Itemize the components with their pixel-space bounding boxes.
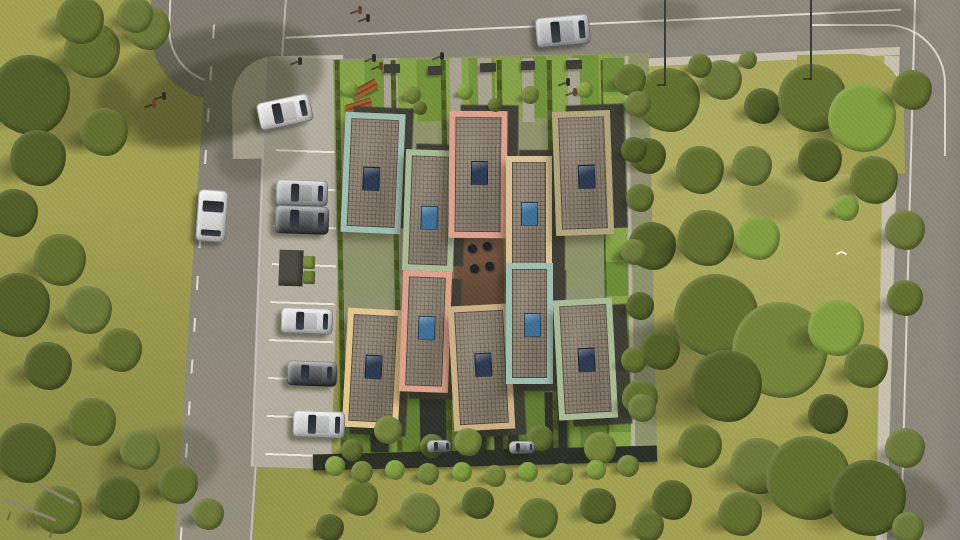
tree (374, 416, 402, 444)
roof-skylight (420, 206, 438, 231)
tree (626, 292, 654, 320)
tree (457, 84, 473, 100)
tree (678, 424, 722, 468)
tree (80, 108, 128, 156)
car-rear-glass (578, 20, 585, 38)
tree (892, 512, 924, 540)
car-rear-glass (201, 229, 221, 237)
car-parked-4 (287, 360, 338, 387)
tree (808, 394, 848, 434)
tree (885, 210, 925, 250)
entry-wall-4 (566, 60, 582, 70)
car-rear-glass (334, 417, 340, 433)
tree (551, 463, 573, 485)
car-roof-panel (308, 365, 323, 381)
car-driving-top-road (535, 14, 591, 49)
roof-skylight (524, 313, 541, 337)
car-rear-glass (317, 186, 323, 202)
car-roof-panel (279, 101, 298, 122)
ground-shadow-6 (640, 0, 700, 28)
tree (732, 146, 772, 186)
waste-bin-1 (303, 271, 315, 284)
tree (0, 189, 38, 237)
tree (850, 156, 898, 204)
entry-wall-2 (480, 63, 496, 73)
car-rear-glass (327, 367, 333, 382)
tree (56, 0, 104, 44)
tree (341, 439, 363, 461)
roof-skylight (471, 161, 488, 185)
car-rear-glass (318, 212, 324, 229)
ground-shadow-5 (828, 0, 918, 34)
tree (584, 432, 616, 464)
aerial-render-canvas (0, 0, 960, 540)
roof-skylight (362, 167, 380, 192)
tree (0, 423, 56, 483)
car-parked-5 (293, 410, 346, 439)
car-roof-panel (303, 313, 318, 330)
tree (98, 328, 142, 372)
person (152, 100, 156, 108)
tree (64, 286, 112, 334)
tree (521, 86, 539, 104)
tree (628, 394, 656, 422)
entry-wall-0 (384, 64, 400, 74)
tree (688, 54, 712, 78)
tree (96, 476, 140, 520)
building-b5 (552, 110, 614, 236)
building-b9 (506, 263, 553, 384)
tree (417, 463, 439, 485)
tree (452, 462, 472, 482)
tree (833, 195, 859, 221)
tree (736, 216, 780, 260)
tree (625, 91, 651, 117)
tree (885, 428, 925, 468)
tree (400, 493, 440, 533)
tree (617, 455, 639, 477)
courtyard-table-2 (470, 264, 479, 273)
tree (68, 398, 116, 446)
tree (462, 487, 494, 519)
tree (626, 184, 654, 212)
person (440, 52, 444, 60)
car-roof-panel (520, 443, 527, 451)
tree (690, 350, 762, 422)
tree (621, 239, 647, 265)
tree (718, 492, 762, 536)
tree (488, 98, 502, 112)
bird-wing-right (841, 251, 847, 256)
tree (120, 430, 160, 470)
tree (316, 514, 344, 540)
car-roof-panel (298, 185, 313, 202)
person (566, 78, 570, 86)
car-parked-3 (281, 307, 334, 335)
person (358, 6, 362, 14)
tree (24, 342, 72, 390)
building-b1 (340, 112, 405, 235)
car-rear-glass (299, 99, 308, 117)
tree (454, 428, 482, 456)
entry-wall-3 (521, 61, 535, 70)
car-driving-left-road (195, 189, 229, 243)
tree (739, 51, 757, 69)
roof-skylight (474, 352, 492, 377)
tree (798, 138, 842, 182)
car-windshield (202, 201, 224, 213)
roof-skylight (521, 202, 538, 226)
car-rear-glass (322, 314, 328, 330)
tree (385, 460, 405, 480)
car-carport-1 (427, 440, 451, 453)
car-rear-glass (446, 442, 449, 450)
tree (586, 460, 606, 480)
pole-base-shadow (803, 78, 811, 80)
person (379, 62, 383, 70)
tree (621, 347, 647, 373)
courtyard-table-3 (485, 262, 494, 271)
car-roof-panel (315, 416, 330, 434)
building-b4 (506, 156, 552, 280)
car-rear-glass (530, 443, 533, 451)
roof-skylight (364, 355, 382, 380)
tree (192, 498, 224, 530)
person (366, 14, 370, 22)
tree (413, 101, 427, 115)
person (573, 88, 577, 96)
roof-skylight (578, 165, 596, 190)
tree (158, 464, 198, 504)
entry-wall-1 (428, 66, 442, 75)
pole-base-shadow (657, 84, 665, 86)
tree (518, 462, 538, 482)
garden-shed (278, 250, 303, 287)
tree (117, 0, 153, 33)
tree (844, 344, 888, 388)
tree (342, 82, 358, 98)
car-roof-panel (558, 20, 575, 40)
tree (484, 465, 506, 487)
car-carport-2 (509, 441, 535, 454)
tree (577, 82, 593, 98)
tree (518, 498, 558, 538)
tree (632, 510, 664, 540)
person (162, 92, 166, 100)
tree (621, 137, 647, 163)
tree (892, 70, 932, 110)
car-parked-2 (275, 205, 330, 235)
street-light-pole (810, 0, 812, 80)
tree (580, 488, 616, 524)
waste-bin-0 (303, 256, 315, 269)
person (298, 57, 302, 65)
street-light-pole (664, 0, 666, 86)
roof-skylight (418, 316, 436, 341)
car-roof-panel (297, 211, 313, 229)
tree (887, 280, 923, 316)
car-roof-panel (437, 442, 444, 450)
tree (342, 480, 378, 516)
roof-skylight (577, 348, 595, 373)
car-parked-1 (276, 179, 329, 207)
person (372, 54, 376, 62)
tree (351, 461, 373, 483)
tree (34, 234, 86, 286)
building-b3 (448, 111, 507, 239)
